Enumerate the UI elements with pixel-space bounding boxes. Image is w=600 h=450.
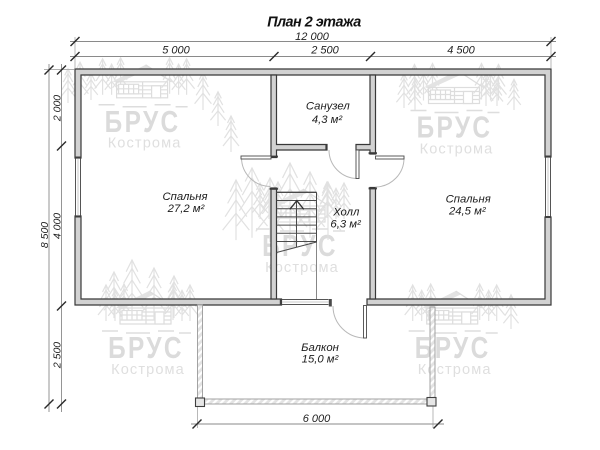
svg-text:4,3 м²: 4,3 м² — [312, 114, 344, 126]
svg-text:27,2 м²: 27,2 м² — [167, 203, 206, 215]
svg-text:Санузел: Санузел — [306, 101, 350, 113]
svg-text:Спальня: Спальня — [162, 191, 207, 203]
svg-text:8 500: 8 500 — [39, 222, 51, 248]
svg-text:24,5 м²: 24,5 м² — [448, 206, 487, 218]
svg-text:Спальня: Спальня — [446, 194, 491, 206]
svg-text:2 500: 2 500 — [52, 342, 64, 369]
svg-text:5 000: 5 000 — [162, 45, 190, 57]
svg-text:6,3 м²: 6,3 м² — [330, 218, 362, 230]
svg-text:2 500: 2 500 — [310, 45, 339, 57]
svg-text:План 2 этажа: План 2 этажа — [267, 14, 361, 30]
svg-text:4 000: 4 000 — [52, 213, 64, 239]
svg-text:6 000: 6 000 — [303, 413, 331, 425]
svg-text:12 000: 12 000 — [295, 31, 330, 43]
svg-text:4 500: 4 500 — [447, 45, 475, 57]
svg-text:Балкон: Балкон — [301, 342, 339, 354]
svg-text:Холл: Холл — [332, 207, 360, 219]
svg-text:15,0 м²: 15,0 м² — [302, 353, 340, 365]
svg-text:2 000: 2 000 — [52, 95, 64, 122]
